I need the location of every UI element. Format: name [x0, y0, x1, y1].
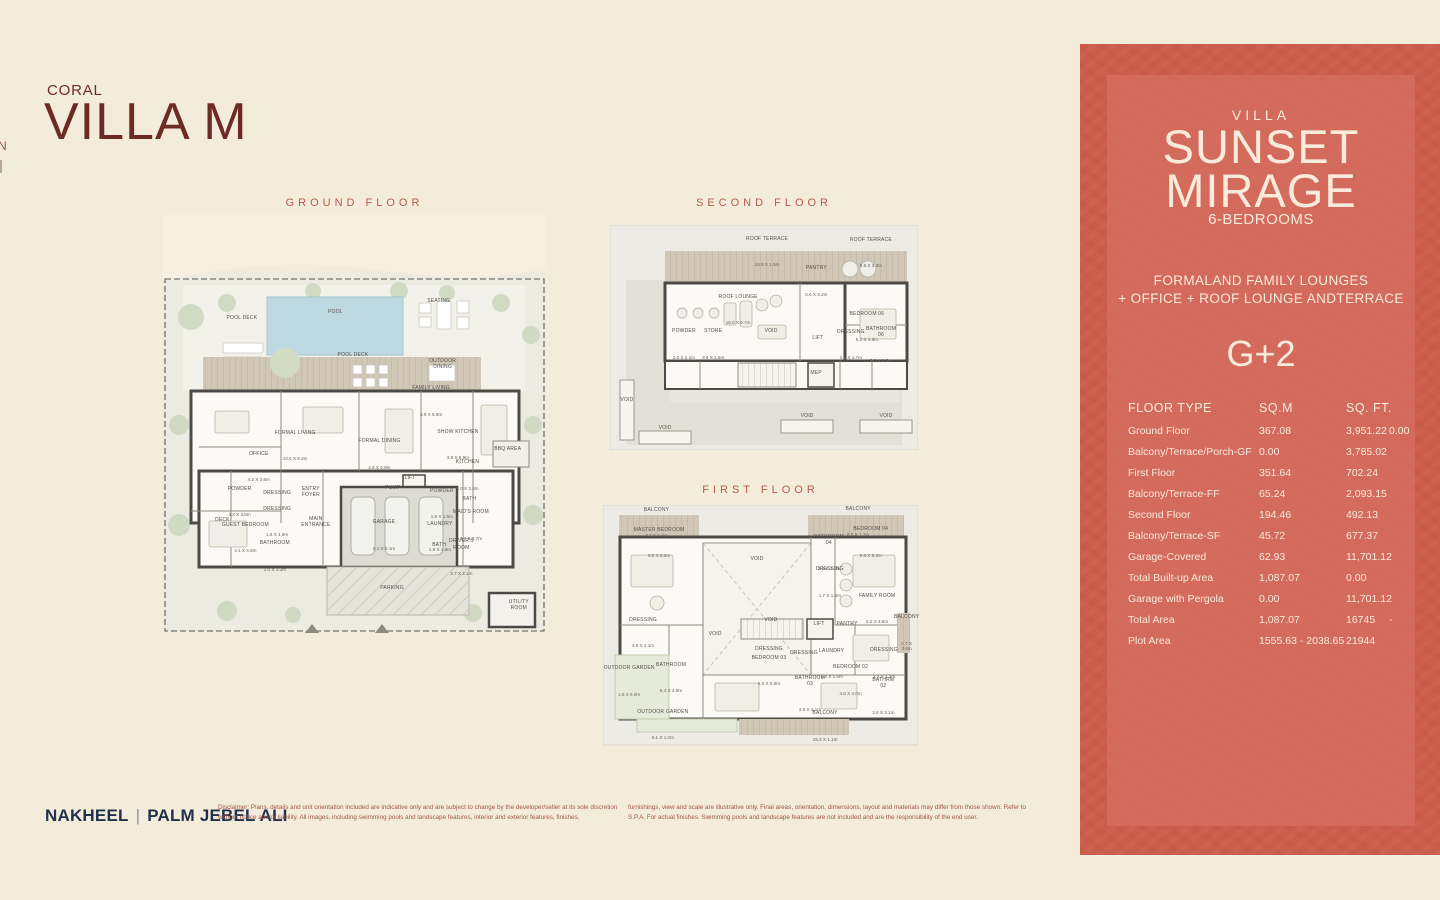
ground-floor-title: GROUND FLOOR [163, 197, 546, 209]
room-label: DRESSING 2.1 X 1.7m [837, 309, 865, 381]
panel-features-line1: FORMALAND FAMILY LOUNGES [1107, 273, 1415, 288]
room-label: BEDROOM 03 5.0 X 5.5m [752, 635, 787, 707]
room-label: GARAGE 9.1 X 6.1m [373, 499, 396, 571]
disclaimer-column-2: furnishings, view and scale are illustra… [628, 803, 1028, 823]
area-table-row: Plot Area 1555.63 - 2038.65 21944 [1107, 635, 1415, 656]
room-label: VOID [659, 405, 672, 471]
panel-name-line1: SUNSET [1107, 123, 1415, 170]
room-label: UTILITY ROOM [509, 579, 529, 652]
ground-floor-drawing [163, 215, 546, 635]
area-table: FLOOR TYPE SQ.M SQ. FT. Ground Floor 367… [1107, 401, 1415, 656]
room-label: VOID [765, 308, 778, 374]
room-label: OUTDOOR GARDEN 6.1 X 1.0m [637, 689, 688, 761]
room-label: STORE 3.6 X 1.5m [702, 308, 724, 380]
area-table-row: Balcony/Terrace/Porch-GF 0.00 3,785.02 [1107, 446, 1415, 467]
edge-cropped-mark [0, 160, 2, 173]
room-label: POOL DECK [338, 332, 369, 398]
brand-separator: | [129, 806, 148, 825]
second-floor-title: SECOND FLOOR [610, 197, 918, 209]
first-floor-plan: BALCONY 7.1 X 1.7m BALCONY 8.6 X 1.7m MA… [603, 505, 918, 747]
info-panel-inner: VILLA SUNSET MIRAGE 6-BEDROOMS FORMALAND… [1107, 75, 1415, 826]
room-label: VOID [709, 611, 722, 677]
area-table-row: Balcony/Terrace-FF 65.24 2,093.15 [1107, 488, 1415, 509]
room-label: BATHRM 02 2.6 X 3.1m [872, 657, 894, 735]
room-label: BEDROOM 02 4.6 X 4.0m [833, 644, 868, 716]
room-label: VOID [751, 536, 764, 602]
panel-name-line2: MIRAGE [1107, 167, 1415, 214]
panel-bedrooms: 6-BEDROOMS [1107, 211, 1415, 228]
room-label: POOL DECK [226, 295, 257, 361]
area-table-row: First Floor 351.64 702.24 [1107, 467, 1415, 488]
second-floor-plan: ROOF TERRACE 16.5 X 1.5m ROOF TERRACE 5.… [610, 225, 918, 450]
header-floor-type: FLOOR TYPE [1128, 401, 1212, 415]
info-panel: VILLA SUNSET MIRAGE 6-BEDROOMS FORMALAND… [1080, 44, 1440, 855]
room-label: BALCONY 0.7 X 3.6m [894, 594, 919, 672]
page-title: VILLA M [44, 92, 248, 152]
header-sqm: SQ.M [1259, 401, 1293, 415]
area-table-rows: Ground Floor 367.08 3,951.22 0.00 Balcon… [1107, 425, 1415, 656]
room-label: MASTER BEDROOM 6.9 X 6.2m [634, 507, 685, 579]
room-label: PANTRY 2.6 X 4.2m [805, 245, 827, 317]
area-table-row: Garage-Covered 62.93 11,701.12 [1107, 551, 1415, 572]
room-label: BEDROOM 04 5.8 X 5.2m [853, 506, 888, 578]
room-label: ROOF TERRACE 5.5 X 3.3m [850, 217, 892, 289]
area-table-row: Total Area 1,087.07 16745 - [1107, 614, 1415, 635]
header-sqft: SQ. FT. [1346, 401, 1392, 415]
ground-floor-plan: POOL DECK POOL SEATING POOL DECK [163, 215, 546, 635]
room-label: SEATING [427, 278, 450, 344]
room-label: ROOF LOUNGE 16.0 X 6.7m [719, 274, 758, 346]
room-label: VOID [801, 393, 814, 459]
room-label: MAIN ENTRANCE [301, 496, 330, 569]
room-label: VOID [879, 393, 892, 459]
area-table-row: Ground Floor 367.08 3,951.22 0.00 [1107, 425, 1415, 446]
panel-features-line2: + OFFICE + ROOF LOUNGE ANDTERRACE [1107, 291, 1415, 306]
area-table-header: FLOOR TYPE SQ.M SQ. FT. [1107, 401, 1415, 425]
panel-storeys: G+2 [1107, 333, 1415, 375]
nakheel-logo: NAKHEEL [45, 806, 129, 825]
area-table-row: Balcony/Terrace-SF 45.72 677.37 [1107, 530, 1415, 551]
area-table-row: Second Floor 194.46 492.13 [1107, 509, 1415, 530]
room-label: BATH [432, 522, 446, 588]
area-table-row: Garage with Pergola 0.00 11,701.12 [1107, 593, 1415, 614]
room-label: LIFT [404, 455, 415, 521]
room-label: PARKING [380, 564, 404, 630]
room-label: VOID [620, 377, 633, 443]
area-table-row: Total Built-up Area 1,087.07 0.00 [1107, 572, 1415, 593]
room-label: DRIVER'S ROOM 3.7 X 2.1m [449, 518, 474, 596]
room-label: BATHROOM 06 3.0 X 2.3m [863, 306, 900, 384]
room-label: BBQ AREA [494, 425, 521, 491]
disclaimer-column-1: Disclaimer: Plans, details and unit orie… [218, 803, 618, 823]
room-label: BATHROOM 2.0 X 3.3m [260, 520, 290, 592]
room-label: POWDER 2.0 X 2.1m [672, 308, 696, 380]
room-label: BALCONY 15.3 X 1.1m [812, 690, 837, 762]
edge-cropped-text: N [0, 140, 7, 152]
brochure-page: CORAL VILLA M N GROUND FLOOR [0, 0, 1440, 900]
